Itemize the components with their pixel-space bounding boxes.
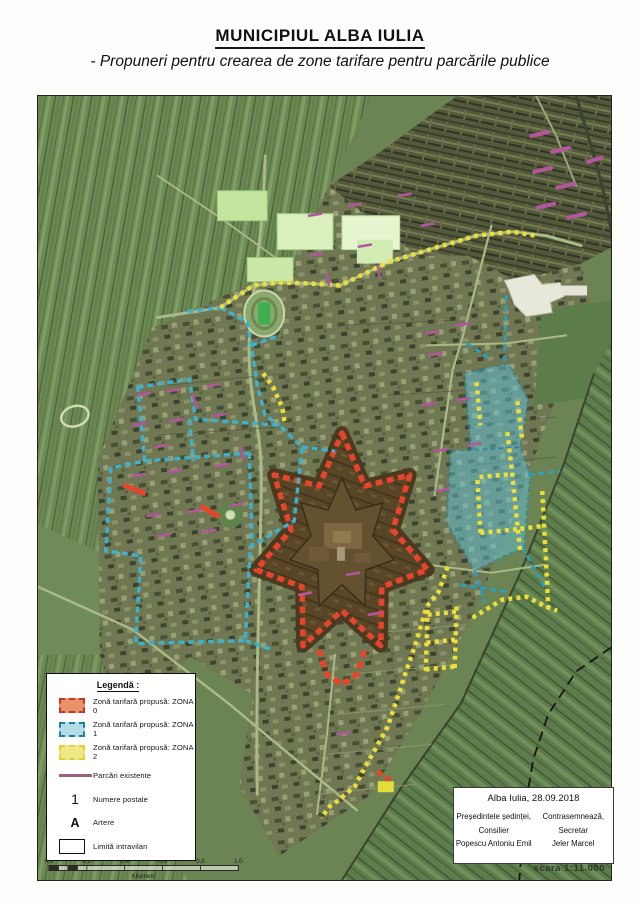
stamp-left-role: Președintele ședinței, bbox=[454, 810, 534, 824]
legend-item-artere: A Artere bbox=[53, 811, 195, 834]
page-title: MUNICIPIUL ALBA IULIA bbox=[215, 26, 424, 49]
zona0-swatch bbox=[59, 698, 85, 713]
city-limit-swatch bbox=[59, 839, 85, 854]
stamp-date: Alba Iulia, 28.09.2018 bbox=[454, 793, 613, 804]
legend-label: Limită intravilan bbox=[93, 842, 195, 851]
stamp-left-name: Popescu Antoniu Emil bbox=[454, 837, 534, 851]
map-scale-text: scara 1:11.000 bbox=[534, 863, 605, 874]
legend-label: Parcări existente bbox=[93, 771, 195, 780]
stamp-left-column: Președintele ședinței, Consilier Popescu… bbox=[454, 810, 534, 851]
page: { "title": "MUNICIPIUL ALBA IULIA", "sub… bbox=[0, 0, 640, 904]
page-subtitle: - Propuneri pentru crearea de zone tarif… bbox=[0, 53, 640, 71]
document-header: MUNICIPIUL ALBA IULIA - Propuneri pentru… bbox=[0, 26, 640, 71]
legend-label: Zonă tarifară propusă: ZONA 1 bbox=[93, 720, 195, 738]
warehouse-building bbox=[561, 286, 587, 296]
signature-box: Alba Iulia, 28.09.2018 Președintele ședi… bbox=[453, 787, 614, 864]
legend-item-zona0: Zonă tarifară propusă: ZONA 0 bbox=[53, 694, 195, 717]
stamp-left-title: Consilier bbox=[454, 824, 534, 838]
stamp-right-name: Jeler Marcel bbox=[534, 837, 614, 851]
postal-number-symbol: 1 bbox=[59, 791, 91, 807]
legend-label: Zonă tarifară propusă: ZONA 0 bbox=[93, 697, 195, 715]
parking-line-swatch bbox=[59, 774, 92, 777]
stadium bbox=[244, 291, 284, 337]
stamp-right-role: Contrasemnează, bbox=[534, 810, 614, 824]
legend-item-zona1: Zonă tarifară propusă: ZONA 1 bbox=[53, 717, 195, 740]
stamp-right-title: Secretar bbox=[534, 824, 614, 838]
legend-title: Legendă : bbox=[53, 680, 183, 690]
scale-tick-label: 0,8 bbox=[196, 858, 205, 865]
stamp-right-column: Contrasemnează, Secretar Jeler Marcel bbox=[534, 810, 614, 851]
scale-unit-label: Kilometri bbox=[132, 873, 156, 880]
map-frame: 0,0 0,2 0,4 0,6 0,8 1,0 Kilometri Legend… bbox=[37, 95, 612, 881]
legend-item-parcari: Parcări existente bbox=[53, 764, 195, 787]
legend-item-zona2: Zonă tarifară propusă: ZONA 2 bbox=[53, 741, 195, 764]
legend-label: Artere bbox=[93, 818, 195, 827]
map-legend: Legendă : Zonă tarifară propusă: ZONA 0 … bbox=[46, 673, 196, 861]
legend-label: Numere postale bbox=[93, 795, 195, 804]
artery-symbol: A bbox=[59, 816, 91, 830]
zona2-swatch bbox=[59, 745, 85, 760]
legend-label: Zonă tarifară propusă: ZONA 2 bbox=[93, 743, 195, 761]
zona1-swatch bbox=[59, 722, 85, 737]
legend-item-numere: 1 Numere postale bbox=[53, 788, 195, 811]
scale-tick-label: 1,0 bbox=[234, 858, 243, 865]
legend-item-limita: Limită intravilan bbox=[53, 834, 195, 857]
